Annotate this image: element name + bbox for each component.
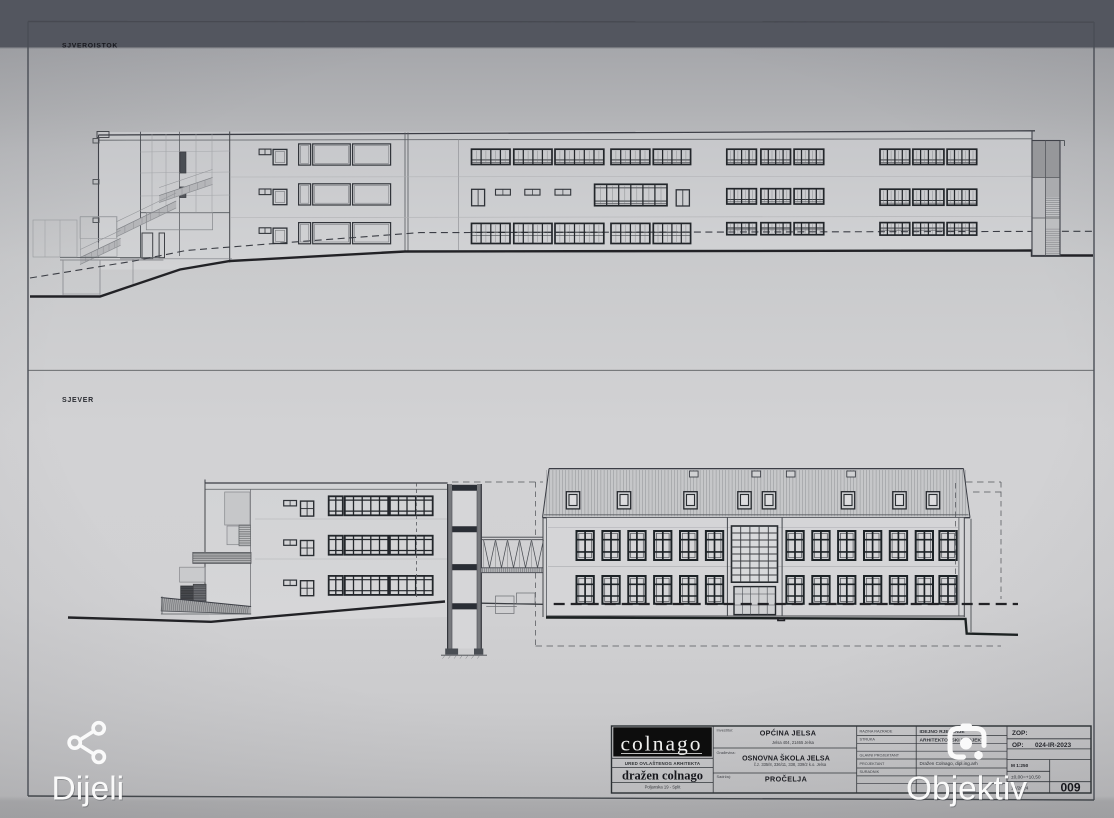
svg-text:GLAVNI PROJEKTANT: GLAVNI PROJEKTANT xyxy=(860,754,900,758)
svg-text:009: 009 xyxy=(1060,780,1080,794)
svg-text:Dražen Colnago, dipl.ing.arh: Dražen Colnago, dipl.ing.arh xyxy=(920,761,979,766)
svg-text:colnago: colnago xyxy=(620,732,702,756)
svg-text:SURADNIK: SURADNIK xyxy=(860,770,880,774)
svg-text:OP:: OP: xyxy=(1012,742,1024,749)
svg-text:STRUKA: STRUKA xyxy=(860,737,876,741)
svg-text:URED OVLAŠTENOG ARHITEKTA: URED OVLAŠTENOG ARHITEKTA xyxy=(625,761,701,766)
svg-text:dražen colnago: dražen colnago xyxy=(622,769,703,783)
svg-text:M 1:250: M 1:250 xyxy=(1011,763,1029,768)
svg-text:č.z. 335/8, 336/11, 338, 339/2: č.z. 335/8, 336/11, 338, 339/2 k.o. Jels… xyxy=(754,762,827,767)
svg-text:PROJEKTANT: PROJEKTANT xyxy=(860,762,886,766)
svg-text:024-IR-2023: 024-IR-2023 xyxy=(1035,742,1072,749)
svg-text:SJEVER: SJEVER xyxy=(62,397,94,404)
svg-text:Objektiv: Objektiv xyxy=(906,771,1027,808)
svg-text:Dijeli: Dijeli xyxy=(52,771,125,808)
svg-text:Jelsa 404, 21465 Jelsa: Jelsa 404, 21465 Jelsa xyxy=(772,740,815,745)
svg-text:ZOP:: ZOP: xyxy=(1012,730,1028,737)
svg-text:Građevina:: Građevina: xyxy=(717,750,736,755)
svg-text:PROČELJA: PROČELJA xyxy=(765,775,807,784)
svg-text:Investitor:: Investitor: xyxy=(717,728,734,733)
svg-text:SJVEROISTOK: SJVEROISTOK xyxy=(62,43,118,50)
svg-text:Poljanska 19 - Split: Poljanska 19 - Split xyxy=(645,784,682,789)
svg-text:OPĆINA JELSA: OPĆINA JELSA xyxy=(760,729,816,738)
svg-text:RAZINA RAZRADE: RAZINA RAZRADE xyxy=(860,729,893,733)
svg-text:Sadržaj:: Sadržaj: xyxy=(717,774,731,779)
